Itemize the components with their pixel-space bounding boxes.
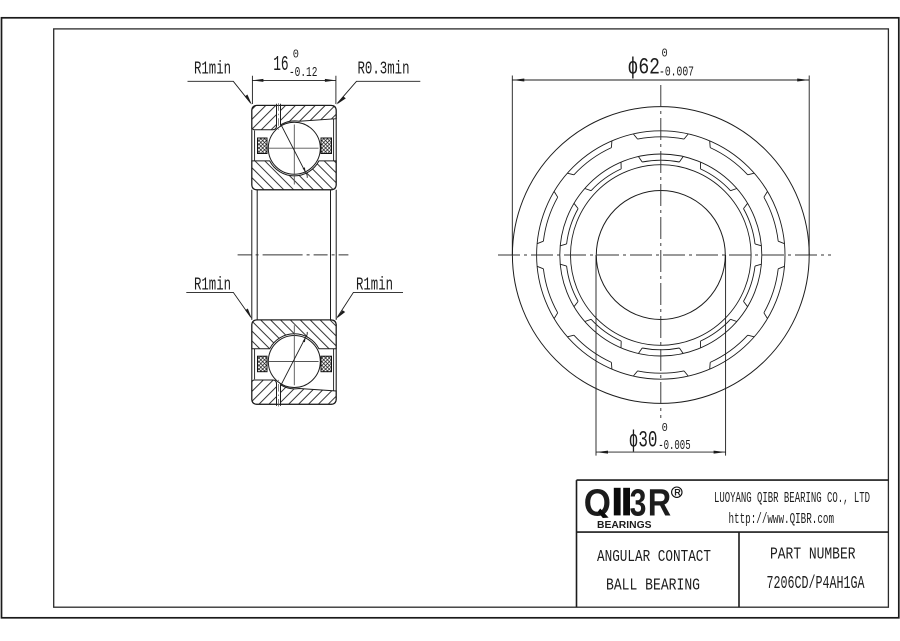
svg-text:R: R — [674, 488, 681, 498]
svg-text:0: 0 — [293, 48, 299, 61]
svg-text:R1min: R1min — [194, 60, 231, 80]
svg-text:16: 16 — [273, 54, 288, 77]
svg-text:7206CD/P4AH1GA: 7206CD/P4AH1GA — [767, 574, 865, 594]
svg-text:0: 0 — [662, 48, 668, 61]
svg-text:R0.3min: R0.3min — [358, 60, 410, 80]
svg-text:-0.007: -0.007 — [659, 65, 694, 80]
svg-text:BEARINGS: BEARINGS — [597, 519, 652, 531]
svg-text:ANGULAR CONTACT: ANGULAR CONTACT — [597, 548, 711, 567]
svg-text:-0.12: -0.12 — [289, 66, 317, 81]
svg-text:PART NUMBER: PART NUMBER — [770, 546, 856, 565]
svg-text:BALL BEARING: BALL BEARING — [606, 576, 700, 595]
svg-text:-0.005: -0.005 — [658, 439, 690, 454]
svg-text:ϕ30: ϕ30 — [629, 427, 658, 453]
svg-text:http://www.QIBR.com: http://www.QIBR.com — [729, 511, 835, 528]
svg-text:ϕ62: ϕ62 — [628, 54, 661, 80]
svg-text:LUOYANG QIBR BEARING CO., LTD: LUOYANG QIBR BEARING CO., LTD — [714, 490, 870, 507]
svg-text:0: 0 — [662, 422, 668, 435]
